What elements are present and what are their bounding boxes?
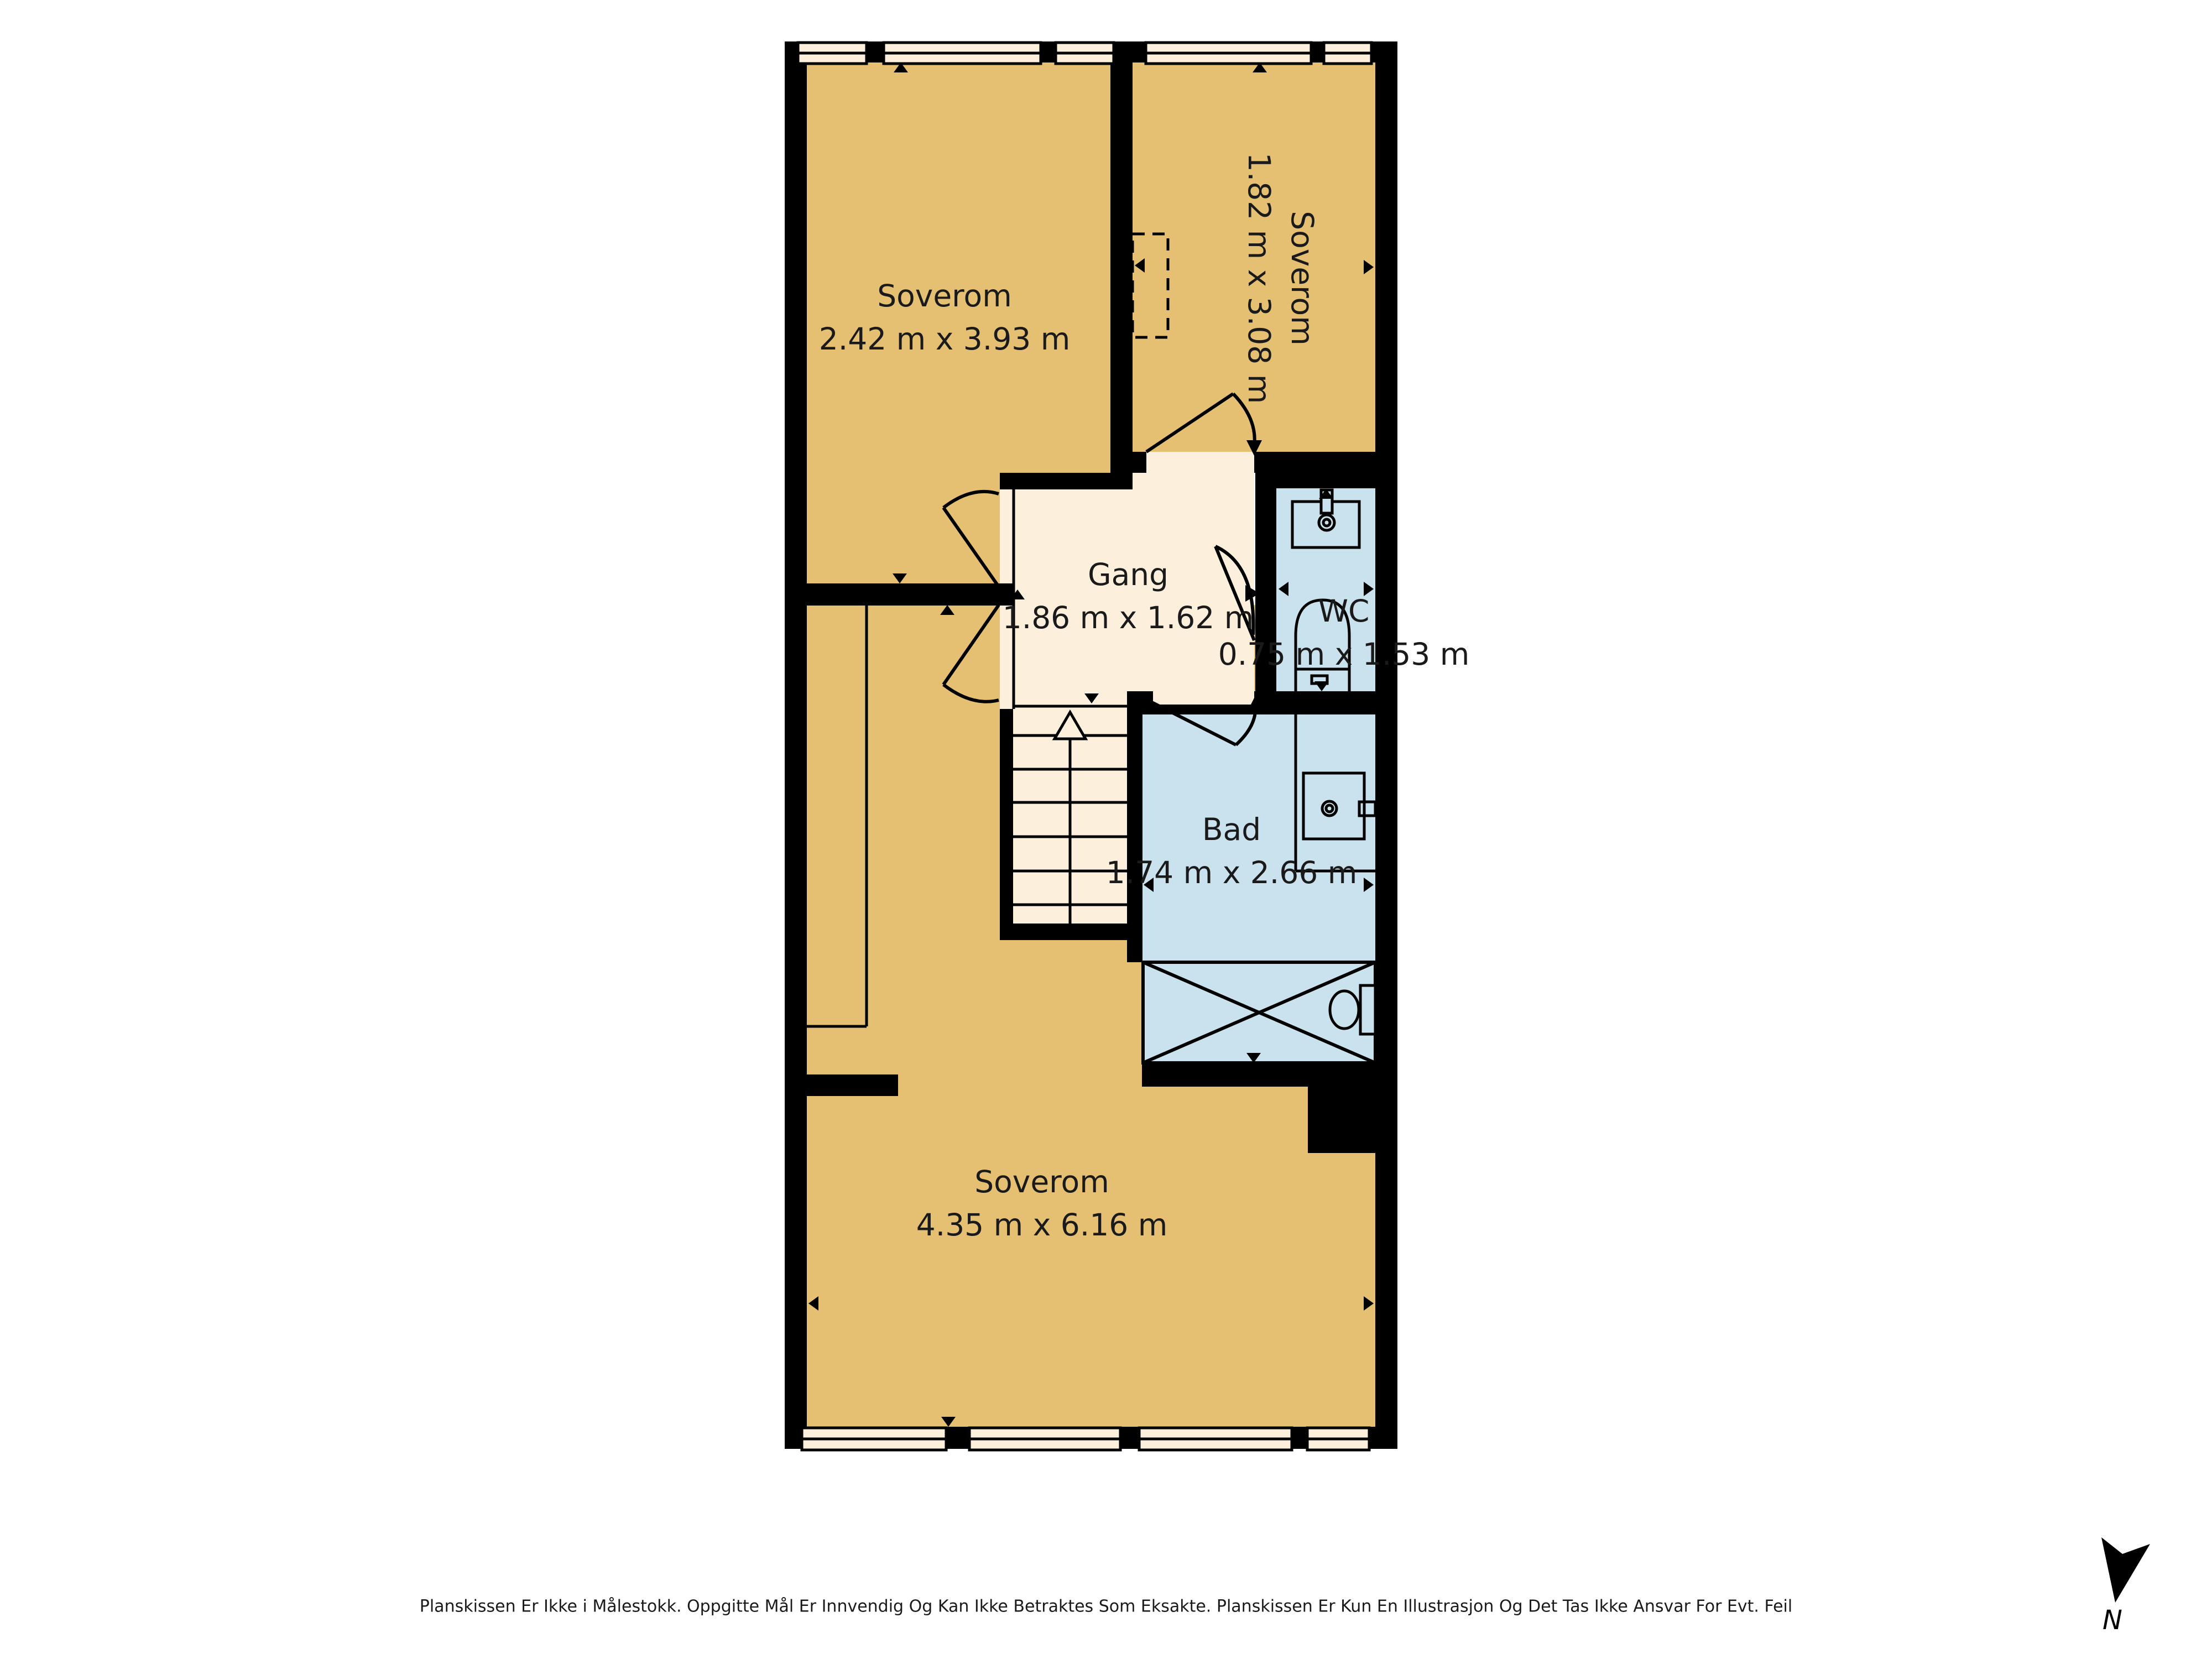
room-label-bedroom-bottom: Soverom 4.35 m x 6.16 m (916, 1160, 1168, 1246)
room-label-bathroom: Bad 1.74 m x 2.66 m (1106, 808, 1358, 894)
room-dimensions: 1.74 m x 2.66 m (1106, 851, 1358, 894)
room-name: Soverom (819, 274, 1071, 317)
room-dimensions: 1.82 m x 3.08 m (1238, 153, 1281, 404)
room-dimensions: 1.86 m x 1.62 m (1003, 596, 1254, 639)
room-name: Soverom (916, 1160, 1168, 1203)
floor-plan-page: Soverom 2.42 m x 3.93 m Soverom 1.82 m x… (0, 0, 2212, 1659)
room-dimensions: 0.75 m x 1.53 m (1218, 633, 1470, 676)
room-name: Gang (1003, 553, 1254, 596)
room-dimensions: 4.35 m x 6.16 m (916, 1203, 1168, 1246)
north-label: N (2103, 1605, 2122, 1636)
room-name: Bad (1106, 808, 1358, 851)
room-name: WC (1218, 589, 1470, 633)
bathroom-toilet-icon (1330, 985, 1375, 1034)
disclaimer-text: Planskissen Er Ikke i Målestokk. Oppgitt… (420, 1597, 1792, 1616)
room-dimensions: 2.42 m x 3.93 m (819, 317, 1071, 361)
room-label-bedroom-top-right: Soverom 1.82 m x 3.08 m (1238, 153, 1324, 404)
room-name: Soverom (1281, 153, 1324, 404)
room-label-bedroom-top-left: Soverom 2.42 m x 3.93 m (819, 274, 1071, 361)
room-label-wc: WC 0.75 m x 1.53 m (1218, 589, 1470, 676)
north-arrow-icon (2101, 1537, 2150, 1603)
room-label-hallway: Gang 1.86 m x 1.62 m (1003, 553, 1254, 639)
